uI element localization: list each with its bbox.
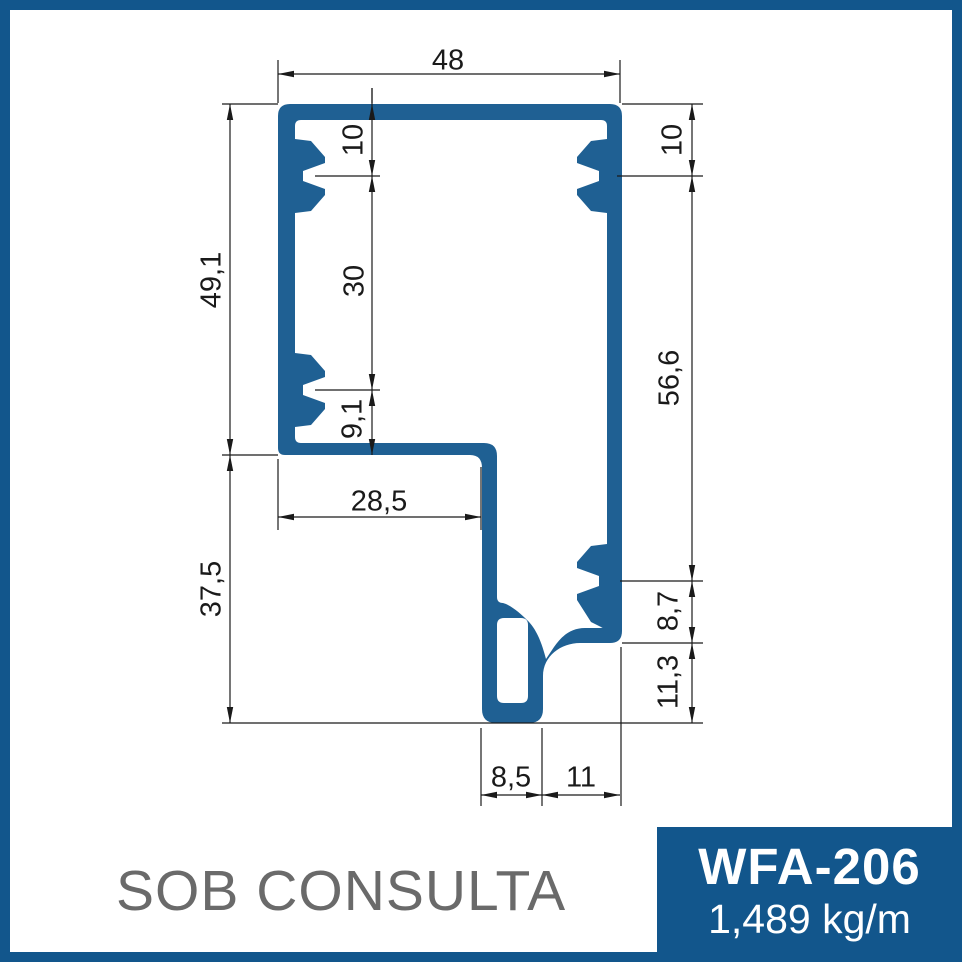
dimension-slot-bottom-offset-left-arrow <box>369 390 375 406</box>
dimension-leg-height-right-arrow <box>689 643 695 659</box>
dimension-annotations: 4810309,149,137,51056,68,711,328,58,511 <box>196 45 703 806</box>
clip-slot-top-right <box>577 139 607 213</box>
dimension-width-top-arrow <box>604 71 620 77</box>
clip-slot-bottom-right <box>577 544 607 630</box>
dimension-step-height-right-label: 8,7 <box>653 591 685 631</box>
dimension-height-lower-left-arrow <box>227 707 233 723</box>
profile-technical-drawing: 4810309,149,137,51056,68,711,328,58,511 <box>0 0 962 962</box>
dimension-height-lower-left-label: 37,5 <box>196 561 228 617</box>
dimension-slot-bottom-offset-left-label: 9,1 <box>337 399 369 439</box>
product-code: WFA-206 <box>657 839 962 895</box>
dimension-slot-top-offset-right-arrow <box>689 104 695 120</box>
dimension-slot-spacing-left-label: 30 <box>339 265 371 297</box>
dimension-slot-spacing-left-arrow <box>369 176 375 192</box>
catalog-page: { "product": { "code": "WFA-206", "weigh… <box>0 0 962 962</box>
dimension-width-top-arrow <box>278 71 294 77</box>
product-badge: WFA-206 1,489 kg/m <box>657 827 962 962</box>
dimension-bottom-offset-arrow <box>604 792 620 798</box>
dimension-slot-spacing-left-arrow <box>369 374 375 390</box>
dimension-step-height-right-arrow <box>689 581 695 597</box>
dimension-leg-height-right-arrow <box>689 707 695 723</box>
profile-shape-group <box>278 104 622 723</box>
availability-watermark: SOB CONSULTA <box>116 858 566 924</box>
dimension-leg-height-right-label: 11,3 <box>653 655 685 709</box>
dimension-slot-top-offset-right-arrow <box>689 160 695 176</box>
dimension-height-right-arrow <box>689 176 695 192</box>
dimension-bottom-offset-arrow <box>542 792 558 798</box>
profile-cross-section <box>278 104 622 723</box>
dimension-slot-top-offset-left-label: 10 <box>338 124 370 156</box>
dimension-slot-top-offset-left-arrow <box>369 160 375 176</box>
dimension-height-upper-left-arrow <box>227 104 233 120</box>
product-weight: 1,489 kg/m <box>657 897 962 942</box>
dimension-height-upper-left-arrow <box>227 439 233 455</box>
dimension-step-height-right-arrow <box>689 627 695 643</box>
dimension-shelf-width-arrow <box>278 514 294 520</box>
dimension-shelf-width-arrow <box>465 514 481 520</box>
dimension-slot-top-offset-right-label: 10 <box>657 124 689 156</box>
dimension-bottom-offset-label: 11 <box>566 762 596 794</box>
dimension-width-top-label: 48 <box>432 45 464 77</box>
dimension-height-lower-left-arrow <box>227 455 233 471</box>
dimension-height-right-arrow <box>689 565 695 581</box>
dimension-height-upper-left-label: 49,1 <box>196 252 228 308</box>
dimension-foot-width-label: 8,5 <box>491 762 531 794</box>
dimension-shelf-width-label: 28,5 <box>351 486 407 518</box>
dimension-height-right-label: 56,6 <box>654 350 686 406</box>
